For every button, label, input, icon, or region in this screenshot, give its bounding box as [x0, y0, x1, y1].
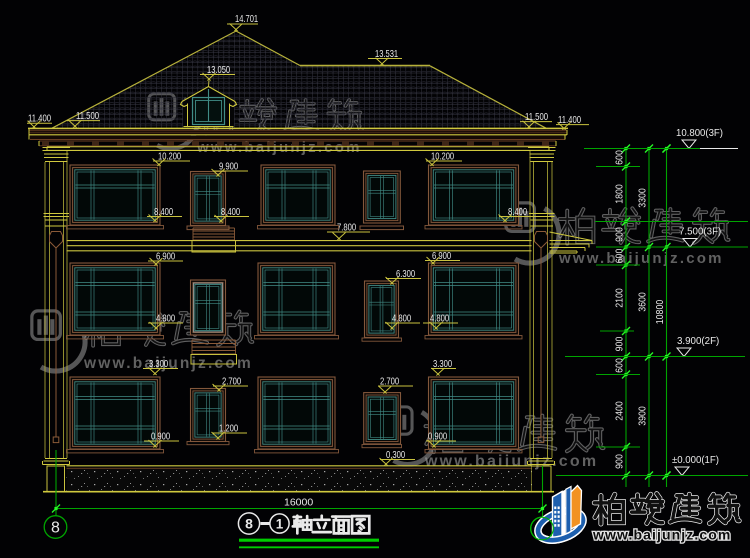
svg-text:900: 900 — [615, 227, 626, 242]
svg-text:3300: 3300 — [638, 188, 649, 208]
svg-text:900: 900 — [615, 454, 626, 469]
svg-text:3600: 3600 — [638, 292, 649, 312]
svg-text:7.500(3F): 7.500(3F) — [679, 227, 721, 238]
svg-text:16000: 16000 — [284, 497, 313, 509]
svg-text:600: 600 — [615, 358, 626, 373]
svg-text:1800: 1800 — [615, 184, 626, 204]
svg-text:±0.000(1F): ±0.000(1F) — [672, 455, 719, 466]
svg-text:600: 600 — [615, 150, 626, 165]
svg-text:3.900(2F): 3.900(2F) — [677, 336, 719, 347]
svg-text:3900: 3900 — [638, 406, 649, 426]
svg-text:8: 8 — [51, 520, 60, 537]
svg-text:www.baijunjz.com: www.baijunjz.com — [558, 250, 724, 267]
svg-text:8: 8 — [245, 516, 253, 532]
svg-text:2100: 2100 — [615, 288, 626, 308]
svg-text:900: 900 — [615, 336, 626, 351]
svg-text:1: 1 — [276, 517, 284, 532]
svg-text:10800: 10800 — [655, 299, 666, 324]
svg-text:10.800(3F): 10.800(3F) — [676, 128, 723, 139]
svg-text:www.baijunjz.com: www.baijunjz.com — [592, 527, 731, 543]
svg-text:14.701: 14.701 — [235, 14, 258, 25]
svg-text:www.baijunjz.com: www.baijunjz.com — [196, 139, 362, 156]
svg-text:600: 600 — [615, 248, 626, 263]
svg-text:2400: 2400 — [615, 401, 626, 421]
